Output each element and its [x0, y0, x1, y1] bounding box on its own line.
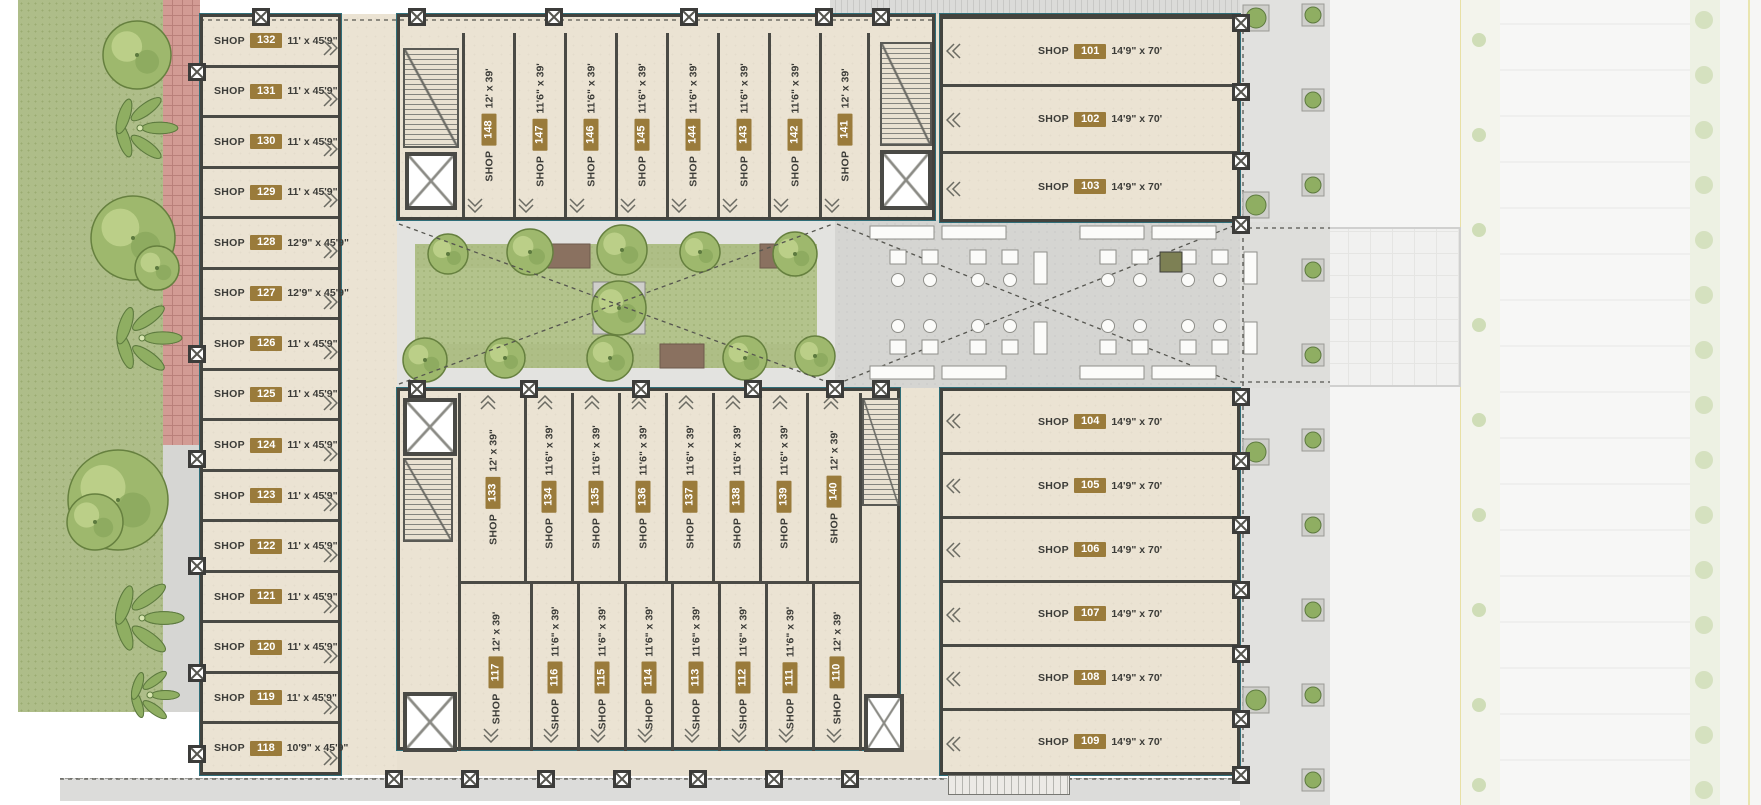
- shop-number-badge: 137: [683, 480, 698, 512]
- door-icon: [322, 698, 338, 716]
- shop-number-badge: 139: [777, 480, 792, 512]
- shop-106[interactable]: SHOP10614'9" x 70': [943, 519, 1237, 583]
- door-icon: [517, 197, 535, 213]
- door-icon: [322, 445, 338, 463]
- door-icon: [568, 197, 586, 213]
- shop-prefix: SHOP: [543, 518, 555, 549]
- shop-dimensions: 10'9" x 45'9": [287, 742, 349, 754]
- column-marker: [188, 557, 206, 575]
- door-icon: [466, 197, 484, 213]
- shop-prefix: SHOP: [637, 518, 649, 549]
- shop-123[interactable]: SHOP12311' x 45'9": [203, 472, 338, 523]
- elevator-icon: [864, 694, 904, 752]
- door-icon: [322, 597, 338, 615]
- door-icon: [479, 395, 497, 411]
- shop-number-badge: 126: [250, 336, 282, 351]
- shop-number-badge: 124: [250, 438, 282, 453]
- elevator-icon: [405, 152, 457, 210]
- shop-prefix: SHOP: [214, 35, 245, 47]
- shop-number-badge: 135: [589, 480, 604, 512]
- door-icon: [823, 197, 841, 213]
- shop-136[interactable]: SHOP13611'6" x 39': [618, 393, 665, 581]
- shop-prefix: SHOP: [643, 698, 655, 729]
- shop-prefix: SHOP: [737, 698, 749, 729]
- shop-number-badge: 118: [250, 741, 282, 756]
- column-marker: [188, 745, 206, 763]
- shop-dimensions: 11'6" x 39': [684, 425, 696, 475]
- column-marker: [680, 8, 698, 26]
- column-marker: [1232, 14, 1250, 32]
- column-marker: [408, 380, 426, 398]
- shop-148[interactable]: SHOP14812' x 39': [462, 33, 513, 217]
- shop-number-badge: 120: [250, 640, 282, 655]
- column-marker: [520, 380, 538, 398]
- shop-prefix: SHOP: [738, 156, 750, 187]
- paved-field: [1500, 0, 1690, 805]
- shop-dimensions: 14'9" x 70': [1111, 544, 1162, 556]
- shop-prefix: SHOP: [214, 439, 245, 451]
- wing-north: SHOP14812' x 39'SHOP14711'6" x 39'SHOP14…: [397, 14, 935, 220]
- shop-prefix: SHOP: [731, 518, 743, 549]
- shop-113[interactable]: SHOP11311'6" x 39': [671, 581, 718, 751]
- door-icon: [589, 727, 607, 743]
- shop-116[interactable]: SHOP11611'6" x 39': [530, 581, 577, 751]
- shop-105[interactable]: SHOP10514'9" x 70': [943, 455, 1237, 519]
- column-marker: [1232, 645, 1250, 663]
- shop-number-badge: 119: [250, 690, 282, 705]
- door-icon: [946, 42, 962, 60]
- shop-prefix: SHOP: [1038, 45, 1069, 57]
- plaza-crossing: [1240, 222, 1330, 388]
- shop-number-badge: 133: [485, 477, 500, 509]
- shop-dimensions: 11'6" x 39': [549, 606, 561, 656]
- door-icon: [636, 727, 654, 743]
- shop-dimensions: 11'6" x 39': [690, 606, 702, 656]
- shop-number-badge: 142: [788, 118, 803, 150]
- column-marker: [188, 63, 206, 81]
- column-marker: [872, 380, 890, 398]
- shop-dimensions: 11'6" x 39': [784, 606, 796, 656]
- shop-prefix: SHOP: [534, 156, 546, 187]
- staircase-icon: [403, 48, 459, 148]
- column-marker: [1232, 581, 1250, 599]
- shop-prefix: SHOP: [483, 151, 495, 182]
- shop-prefix: SHOP: [214, 388, 245, 400]
- column-marker: [689, 770, 707, 788]
- door-icon: [322, 495, 338, 513]
- shop-142[interactable]: SHOP14211'6" x 39': [768, 33, 819, 217]
- shop-dimensions: 11'6" x 39': [731, 425, 743, 475]
- shop-dimensions: 11'6" x 39': [543, 425, 555, 475]
- shop-dimensions: 12' x 39": [487, 429, 499, 472]
- west-rows: SHOP13211' x 45'9"SHOP13111' x 45'9"SHOP…: [203, 17, 338, 772]
- shop-prefix: SHOP: [1038, 181, 1069, 193]
- column-marker: [632, 380, 650, 398]
- column-marker: [744, 380, 762, 398]
- column-marker: [815, 8, 833, 26]
- shop-dimensions: 12' x 39': [839, 68, 851, 108]
- shop-145[interactable]: SHOP14511'6" x 39': [615, 33, 666, 217]
- shop-number-badge: 127: [250, 286, 282, 301]
- shop-dimensions: 14'9" x 70': [1111, 672, 1162, 684]
- shop-number-badge: 116: [548, 661, 563, 693]
- door-icon: [946, 670, 962, 688]
- shop-number-badge: 131: [250, 84, 282, 99]
- shop-prefix: SHOP: [585, 156, 597, 187]
- shop-number-badge: 113: [689, 661, 704, 693]
- door-icon: [322, 343, 338, 361]
- right-sidewalk: [1240, 0, 1330, 805]
- staircase-icon: [403, 458, 453, 542]
- shop-prefix: SHOP: [687, 156, 699, 187]
- entrance-steps: [948, 775, 1070, 795]
- shop-dimensions: 14'9" x 70': [1111, 181, 1162, 193]
- shop-dimensions: 11'6" x 39': [643, 606, 655, 656]
- shop-112[interactable]: SHOP11211'6" x 39': [718, 581, 765, 751]
- shop-number-badge: 145: [635, 118, 650, 150]
- shop-number-badge: 105: [1074, 478, 1106, 493]
- column-marker: [537, 770, 555, 788]
- column-marker: [1232, 516, 1250, 534]
- shop-number-badge: 122: [250, 539, 282, 554]
- column-marker: [188, 450, 206, 468]
- column-marker: [1232, 216, 1250, 234]
- shop-114[interactable]: SHOP11411'6" x 39': [624, 581, 671, 751]
- planted-median: [1460, 0, 1502, 805]
- shop-prefix: SHOP: [831, 693, 843, 724]
- shop-prefix: SHOP: [1038, 416, 1069, 428]
- door-icon: [777, 727, 795, 743]
- shop-number-badge: 107: [1074, 606, 1106, 621]
- shop-118[interactable]: SHOP11810'9" x 45'9": [203, 724, 338, 772]
- shop-117[interactable]: SHOP11712' x 39': [458, 581, 530, 751]
- shop-prefix: SHOP: [214, 540, 245, 552]
- shop-132[interactable]: SHOP13211' x 45'9": [203, 17, 338, 68]
- shop-number-badge: 112: [736, 661, 751, 693]
- shop-prefix: SHOP: [1038, 480, 1069, 492]
- shop-prefix: SHOP: [490, 693, 502, 724]
- door-icon: [946, 180, 962, 198]
- shop-124[interactable]: SHOP12411' x 45'9": [203, 421, 338, 472]
- door-icon: [322, 749, 338, 767]
- shop-prefix: SHOP: [214, 186, 245, 198]
- shop-prefix: SHOP: [778, 518, 790, 549]
- staircase-icon: [880, 42, 932, 146]
- door-icon: [482, 727, 500, 743]
- shop-104[interactable]: SHOP10414'9" x 70': [943, 391, 1237, 455]
- shop-140[interactable]: SHOP14012' x 39': [806, 393, 862, 581]
- column-marker: [613, 770, 631, 788]
- column-marker: [545, 8, 563, 26]
- shop-number-badge: 102: [1074, 112, 1106, 127]
- elevator-icon: [880, 150, 932, 210]
- shop-prefix: SHOP: [214, 85, 245, 97]
- shop-dimensions: 11'6" x 39': [737, 606, 749, 656]
- shop-dimensions: 14'9" x 70': [1111, 416, 1162, 428]
- shop-prefix: SHOP: [1038, 608, 1069, 620]
- shop-127[interactable]: SHOP12712'9" x 45'9": [203, 270, 338, 321]
- shop-147[interactable]: SHOP14711'6" x 39': [513, 33, 564, 217]
- shop-prefix: SHOP: [214, 591, 245, 603]
- shop-number-badge: 104: [1074, 414, 1106, 429]
- door-icon: [946, 111, 962, 129]
- far-green-strip: [1690, 0, 1720, 805]
- door-icon: [825, 727, 843, 743]
- shop-dimensions: 11'6" x 39': [687, 63, 699, 113]
- shop-dimensions: 14'9" x 70': [1111, 736, 1162, 748]
- shop-number-badge: 138: [730, 480, 745, 512]
- shop-prefix: SHOP: [828, 513, 840, 544]
- shop-119[interactable]: SHOP11911' x 45'9": [203, 674, 338, 725]
- shop-prefix: SHOP: [690, 698, 702, 729]
- shop-128[interactable]: SHOP12812'9" x 45'9": [203, 219, 338, 270]
- column-marker: [1232, 83, 1250, 101]
- shop-109[interactable]: SHOP10914'9" x 70': [943, 711, 1237, 772]
- shop-122[interactable]: SHOP12211' x 45'9": [203, 522, 338, 573]
- door-icon: [946, 477, 962, 495]
- shop-115[interactable]: SHOP11511'6" x 39': [577, 581, 624, 751]
- right-road: [1330, 0, 1460, 805]
- door-icon: [322, 242, 338, 260]
- yellow-boundary-line: [1748, 0, 1750, 805]
- shop-dimensions: 12' x 39': [831, 611, 843, 651]
- shop-prefix: SHOP: [214, 490, 245, 502]
- shop-103[interactable]: SHOP10314'9" x 70': [943, 154, 1237, 219]
- shop-131[interactable]: SHOP13111' x 45'9": [203, 68, 338, 119]
- shop-146[interactable]: SHOP14611'6" x 39': [564, 33, 615, 217]
- door-icon: [772, 197, 790, 213]
- shop-prefix: SHOP: [684, 518, 696, 549]
- shop-134[interactable]: SHOP13411'6" x 39': [524, 393, 571, 581]
- door-icon: [724, 395, 742, 411]
- shop-number-badge: 128: [250, 235, 282, 250]
- shop-prefix: SHOP: [590, 518, 602, 549]
- column-marker: [1232, 452, 1250, 470]
- door-icon: [771, 395, 789, 411]
- column-marker: [408, 8, 426, 26]
- shop-129[interactable]: SHOP12911' x 45'9": [203, 169, 338, 220]
- shop-number-badge: 115: [595, 661, 610, 693]
- shop-prefix: SHOP: [596, 698, 608, 729]
- shop-number-badge: 132: [250, 33, 282, 48]
- shop-prefix: SHOP: [214, 136, 245, 148]
- paved-plaza-grid: [1325, 227, 1461, 387]
- column-marker: [1232, 766, 1250, 784]
- door-icon: [670, 197, 688, 213]
- shop-138[interactable]: SHOP13811'6" x 39': [712, 393, 759, 581]
- column-marker: [1232, 388, 1250, 406]
- shop-121[interactable]: SHOP12111' x 45'9": [203, 573, 338, 624]
- door-icon: [946, 606, 962, 624]
- shop-prefix: SHOP: [1038, 736, 1069, 748]
- door-icon: [322, 647, 338, 665]
- shop-prefix: SHOP: [214, 692, 245, 704]
- shop-number-badge: 109: [1074, 734, 1106, 749]
- shop-number-badge: 114: [642, 661, 657, 693]
- shop-number-badge: 111: [783, 662, 798, 693]
- shop-dimensions: 11'6" x 39': [596, 606, 608, 656]
- shop-number-badge: 134: [542, 480, 557, 512]
- shop-108[interactable]: SHOP10814'9" x 70': [943, 647, 1237, 711]
- retail-site-plan: SHOP13211' x 45'9"SHOP13111' x 45'9"SHOP…: [0, 0, 1761, 805]
- shop-dimensions: 14'9" x 70': [1111, 608, 1162, 620]
- column-marker: [252, 8, 270, 26]
- column-marker: [841, 770, 859, 788]
- door-icon: [583, 395, 601, 411]
- shop-dimensions: 14'9" x 70': [1111, 480, 1162, 492]
- shop-dimensions: 11'6" x 39': [590, 425, 602, 475]
- shop-number-badge: 144: [686, 118, 701, 150]
- shop-number-badge: 103: [1074, 179, 1106, 194]
- door-icon: [322, 140, 338, 158]
- shop-dimensions: 11'6" x 39': [789, 63, 801, 113]
- shop-dimensions: 12' x 39': [490, 611, 502, 651]
- east-south-rows: SHOP10414'9" x 70'SHOP10514'9" x 70'SHOP…: [943, 391, 1237, 772]
- shop-prefix: SHOP: [214, 287, 245, 299]
- shop-126[interactable]: SHOP12611' x 45'9": [203, 320, 338, 371]
- shop-number-badge: 110: [830, 656, 845, 688]
- east-north-rows: SHOP10114'9" x 70'SHOP10214'9" x 70'SHOP…: [943, 19, 1237, 219]
- elevator-icon: [403, 692, 457, 752]
- shop-141[interactable]: SHOP14112' x 39': [819, 33, 870, 217]
- column-marker: [385, 770, 403, 788]
- wing-west: SHOP13211' x 45'9"SHOP13111' x 45'9"SHOP…: [200, 14, 341, 775]
- shop-prefix: SHOP: [214, 338, 245, 350]
- shop-prefix: SHOP: [214, 742, 245, 754]
- column-marker: [872, 8, 890, 26]
- column-marker: [1232, 710, 1250, 728]
- door-icon: [946, 541, 962, 559]
- column-marker: [765, 770, 783, 788]
- shop-number-badge: 129: [250, 185, 282, 200]
- shop-number-badge: 108: [1074, 670, 1106, 685]
- shop-number-badge: 143: [737, 118, 752, 150]
- shop-dimensions: 11'6" x 39': [534, 63, 546, 113]
- shop-125[interactable]: SHOP12511' x 45'9": [203, 371, 338, 422]
- shop-110[interactable]: SHOP11012' x 39': [812, 581, 862, 751]
- shop-111[interactable]: SHOP11111'6" x 39': [765, 581, 812, 751]
- shop-137[interactable]: SHOP13711'6" x 39': [665, 393, 712, 581]
- door-icon: [730, 727, 748, 743]
- shop-dimensions: 11'6" x 39': [636, 63, 648, 113]
- shop-number-badge: 147: [533, 118, 548, 150]
- shop-dimensions: 11'6" x 39': [778, 425, 790, 475]
- shop-prefix: SHOP: [1038, 544, 1069, 556]
- wing-east-north: SHOP10114'9" x 70'SHOP10214'9" x 70'SHOP…: [940, 14, 1240, 222]
- shop-dimensions: 11'6" x 39': [738, 63, 750, 113]
- shop-number-badge: 117: [488, 656, 503, 688]
- shop-number-badge: 136: [636, 480, 651, 512]
- door-icon: [536, 395, 554, 411]
- door-icon: [683, 727, 701, 743]
- shop-dimensions: 14'9" x 70': [1111, 45, 1162, 57]
- column-marker: [461, 770, 479, 788]
- column-marker: [1232, 152, 1250, 170]
- shop-dimensions: 12' x 39': [828, 430, 840, 470]
- shop-number-badge: 130: [250, 134, 282, 149]
- shop-dimensions: 12'9" x 45'9": [287, 237, 349, 249]
- door-icon: [677, 395, 695, 411]
- shop-dimensions: 12' x 39': [483, 68, 495, 108]
- door-icon: [542, 727, 560, 743]
- shop-130[interactable]: SHOP13011' x 45'9": [203, 118, 338, 169]
- shop-prefix: SHOP: [487, 514, 499, 545]
- shop-number-badge: 140: [827, 475, 842, 507]
- shop-number-badge: 106: [1074, 542, 1106, 557]
- shop-prefix: SHOP: [784, 698, 796, 729]
- door-icon: [322, 191, 338, 209]
- shop-dimensions: 12'9" x 45'9": [287, 287, 349, 299]
- door-icon: [322, 39, 338, 57]
- shop-107[interactable]: SHOP10714'9" x 70': [943, 583, 1237, 647]
- door-icon: [322, 546, 338, 564]
- shop-143[interactable]: SHOP14311'6" x 39': [717, 33, 768, 217]
- door-icon: [322, 293, 338, 311]
- shop-135[interactable]: SHOP13511'6" x 39': [571, 393, 618, 581]
- wing-east-south: SHOP10414'9" x 70'SHOP10514'9" x 70'SHOP…: [940, 388, 1240, 775]
- shop-number-badge: 123: [250, 488, 282, 503]
- shop-120[interactable]: SHOP12011' x 45'9": [203, 623, 338, 674]
- shop-prefix: SHOP: [549, 698, 561, 729]
- door-icon: [946, 735, 962, 753]
- right-edge-strip: [1720, 0, 1761, 805]
- wing-south: SHOP13312' x 39"SHOP13411'6" x 39'SHOP13…: [397, 388, 900, 750]
- shop-prefix: SHOP: [789, 156, 801, 187]
- shop-139[interactable]: SHOP13911'6" x 39': [759, 393, 806, 581]
- seating-plaza: [835, 220, 1240, 388]
- lawn-strip: [18, 0, 163, 712]
- column-marker: [826, 380, 844, 398]
- staircase-icon: [862, 398, 900, 506]
- shop-number-badge: 148: [482, 113, 497, 145]
- shop-prefix: SHOP: [214, 641, 245, 653]
- shop-prefix: SHOP: [636, 156, 648, 187]
- shop-prefix: SHOP: [214, 237, 245, 249]
- door-icon: [322, 394, 338, 412]
- shop-prefix: SHOP: [839, 151, 851, 182]
- column-marker: [188, 664, 206, 682]
- courtyard-lawn: [415, 244, 817, 368]
- shop-144[interactable]: SHOP14411'6" x 39': [666, 33, 717, 217]
- shop-prefix: SHOP: [1038, 113, 1069, 125]
- door-icon: [946, 412, 962, 430]
- elevator-icon: [403, 398, 457, 456]
- shop-dimensions: 11'6" x 39': [585, 63, 597, 113]
- column-marker: [188, 345, 206, 363]
- shop-number-badge: 121: [250, 589, 282, 604]
- shop-133[interactable]: SHOP13312' x 39": [458, 393, 524, 581]
- door-icon: [619, 197, 637, 213]
- shop-number-badge: 125: [250, 387, 282, 402]
- shop-dimensions: 11'6" x 39': [637, 425, 649, 475]
- shop-101[interactable]: SHOP10114'9" x 70': [943, 19, 1237, 87]
- shop-number-badge: 141: [837, 113, 852, 145]
- shop-number-badge: 101: [1074, 44, 1106, 59]
- shop-dimensions: 14'9" x 70': [1111, 113, 1162, 125]
- shop-102[interactable]: SHOP10214'9" x 70': [943, 87, 1237, 155]
- shop-number-badge: 146: [584, 118, 599, 150]
- door-icon: [721, 197, 739, 213]
- shop-prefix: SHOP: [1038, 672, 1069, 684]
- door-icon: [322, 90, 338, 108]
